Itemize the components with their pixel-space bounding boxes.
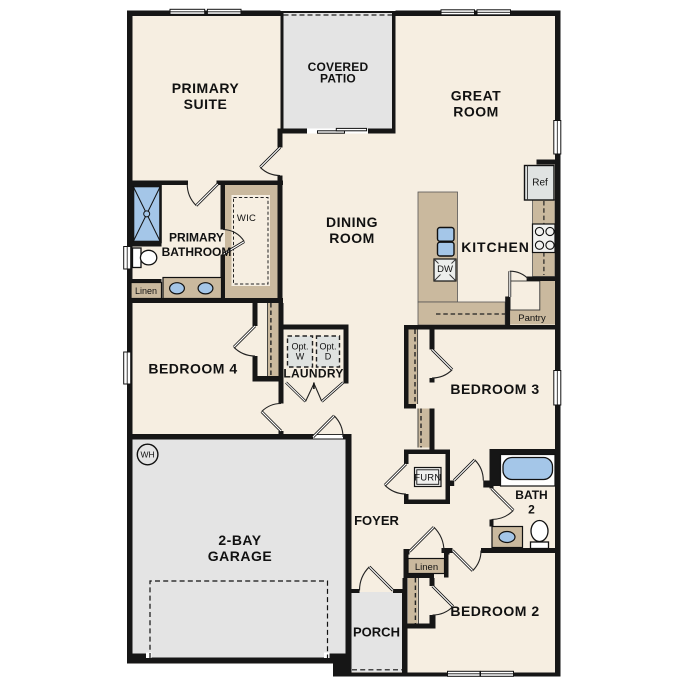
svg-text:W: W — [296, 352, 305, 362]
svg-text:PATIO: PATIO — [320, 71, 356, 85]
svg-text:PORCH: PORCH — [353, 625, 400, 640]
svg-text:D: D — [325, 352, 332, 362]
svg-text:BATH: BATH — [515, 488, 547, 502]
svg-text:PRIMARY: PRIMARY — [172, 80, 240, 96]
svg-text:BEDROOM 2: BEDROOM 2 — [450, 603, 539, 619]
svg-text:SUITE: SUITE — [184, 96, 228, 112]
svg-text:LAUNDRY: LAUNDRY — [283, 366, 343, 380]
svg-text:FOYER: FOYER — [354, 513, 399, 528]
svg-text:PRIMARY: PRIMARY — [169, 230, 224, 244]
svg-text:BATHROOM: BATHROOM — [162, 245, 232, 259]
svg-text:ROOM: ROOM — [453, 104, 499, 120]
svg-text:GARAGE: GARAGE — [208, 548, 272, 564]
svg-text:GREAT: GREAT — [451, 88, 501, 104]
svg-text:BEDROOM 4: BEDROOM 4 — [148, 361, 237, 377]
svg-text:FURN: FURN — [414, 472, 441, 483]
svg-text:BEDROOM 3: BEDROOM 3 — [450, 381, 539, 397]
svg-text:ROOM: ROOM — [329, 230, 375, 246]
svg-text:KITCHEN: KITCHEN — [461, 239, 530, 255]
svg-text:2-BAY: 2-BAY — [218, 532, 261, 548]
svg-text:WIC: WIC — [237, 213, 256, 224]
svg-text:Pantry: Pantry — [518, 313, 546, 324]
svg-text:Ref: Ref — [532, 178, 548, 189]
svg-text:Opt.: Opt. — [319, 342, 336, 352]
svg-text:2: 2 — [528, 502, 535, 516]
svg-text:WH: WH — [141, 450, 155, 460]
svg-text:Opt.: Opt. — [291, 342, 308, 352]
svg-text:Linen: Linen — [135, 286, 157, 296]
svg-text:DINING: DINING — [326, 214, 378, 230]
svg-text:Linen: Linen — [415, 562, 438, 573]
svg-text:DW: DW — [437, 264, 453, 275]
